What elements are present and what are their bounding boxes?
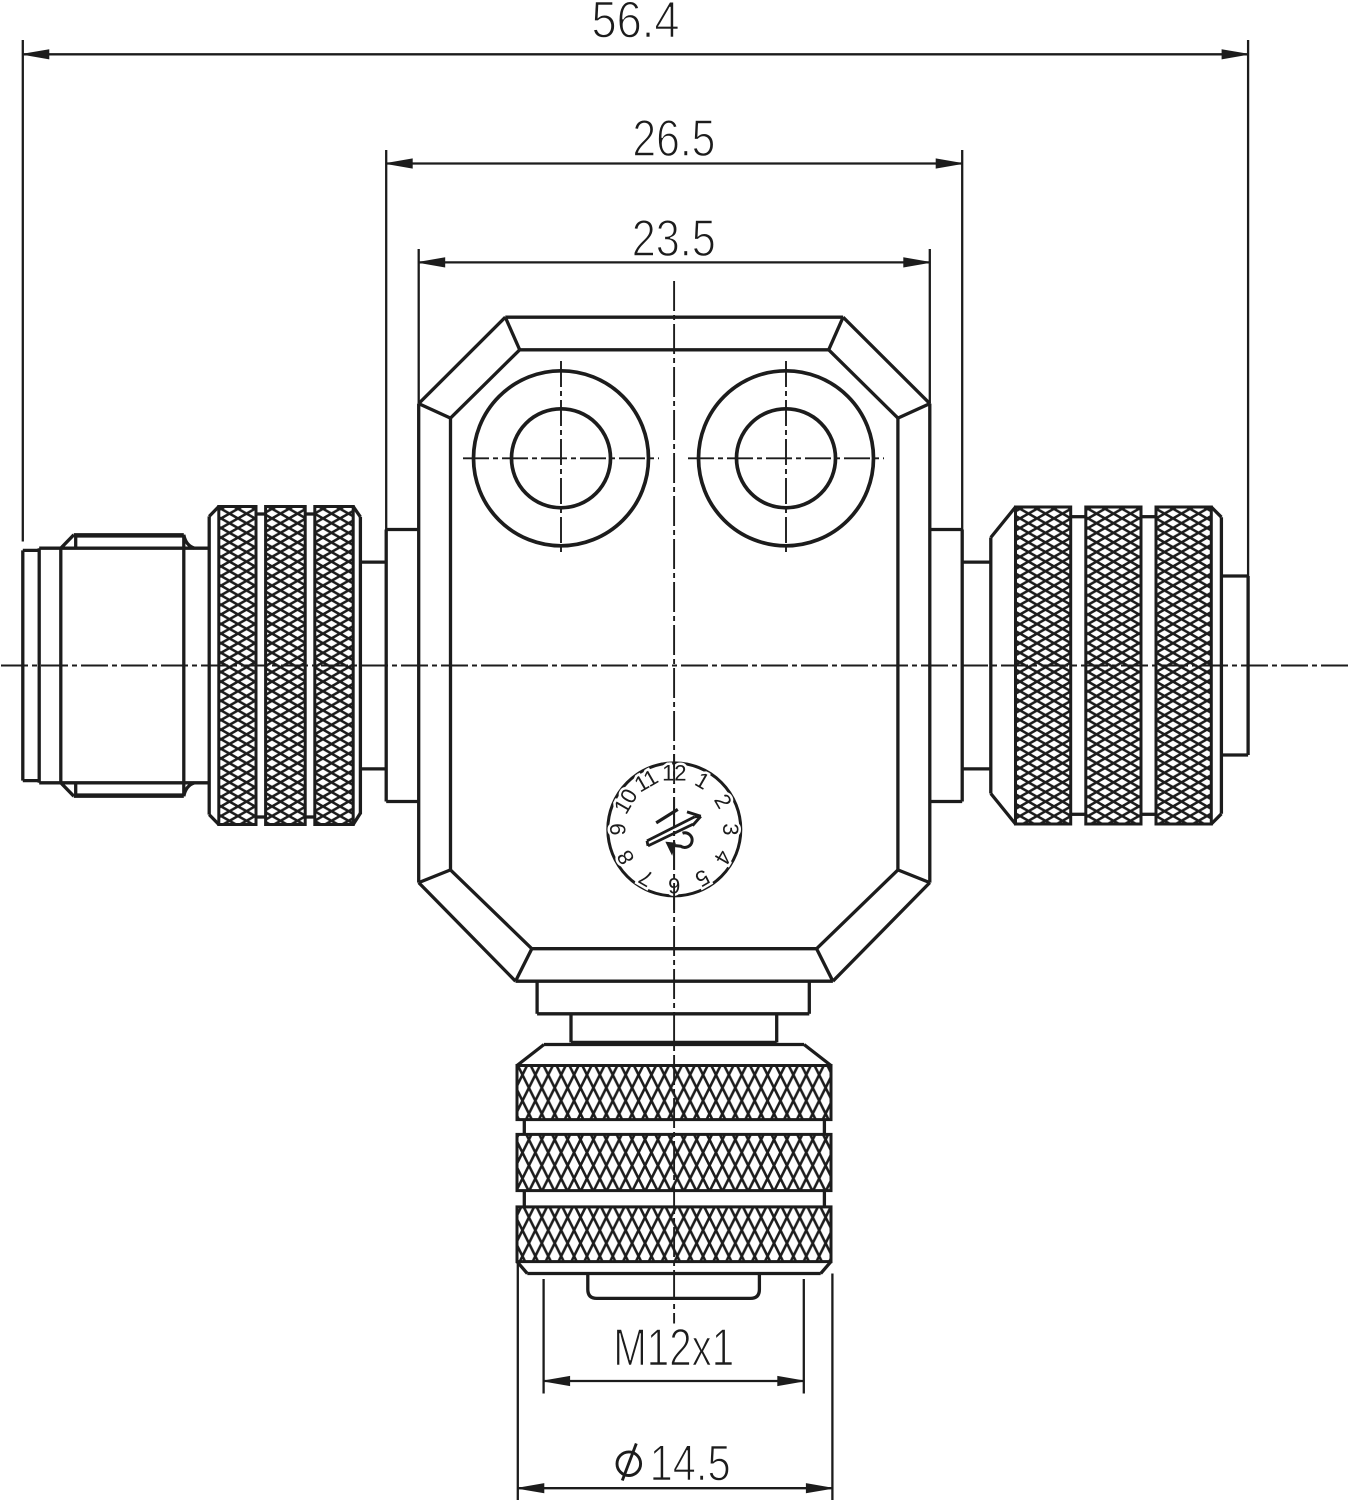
svg-text:26.5: 26.5 <box>632 110 715 168</box>
svg-text:14.5: 14.5 <box>650 1435 731 1492</box>
svg-text:9: 9 <box>606 823 631 835</box>
svg-text:3: 3 <box>718 823 743 835</box>
svg-text:56.4: 56.4 <box>592 0 680 49</box>
svg-text:M12x1: M12x1 <box>613 1318 734 1377</box>
svg-text:23.5: 23.5 <box>632 210 716 268</box>
